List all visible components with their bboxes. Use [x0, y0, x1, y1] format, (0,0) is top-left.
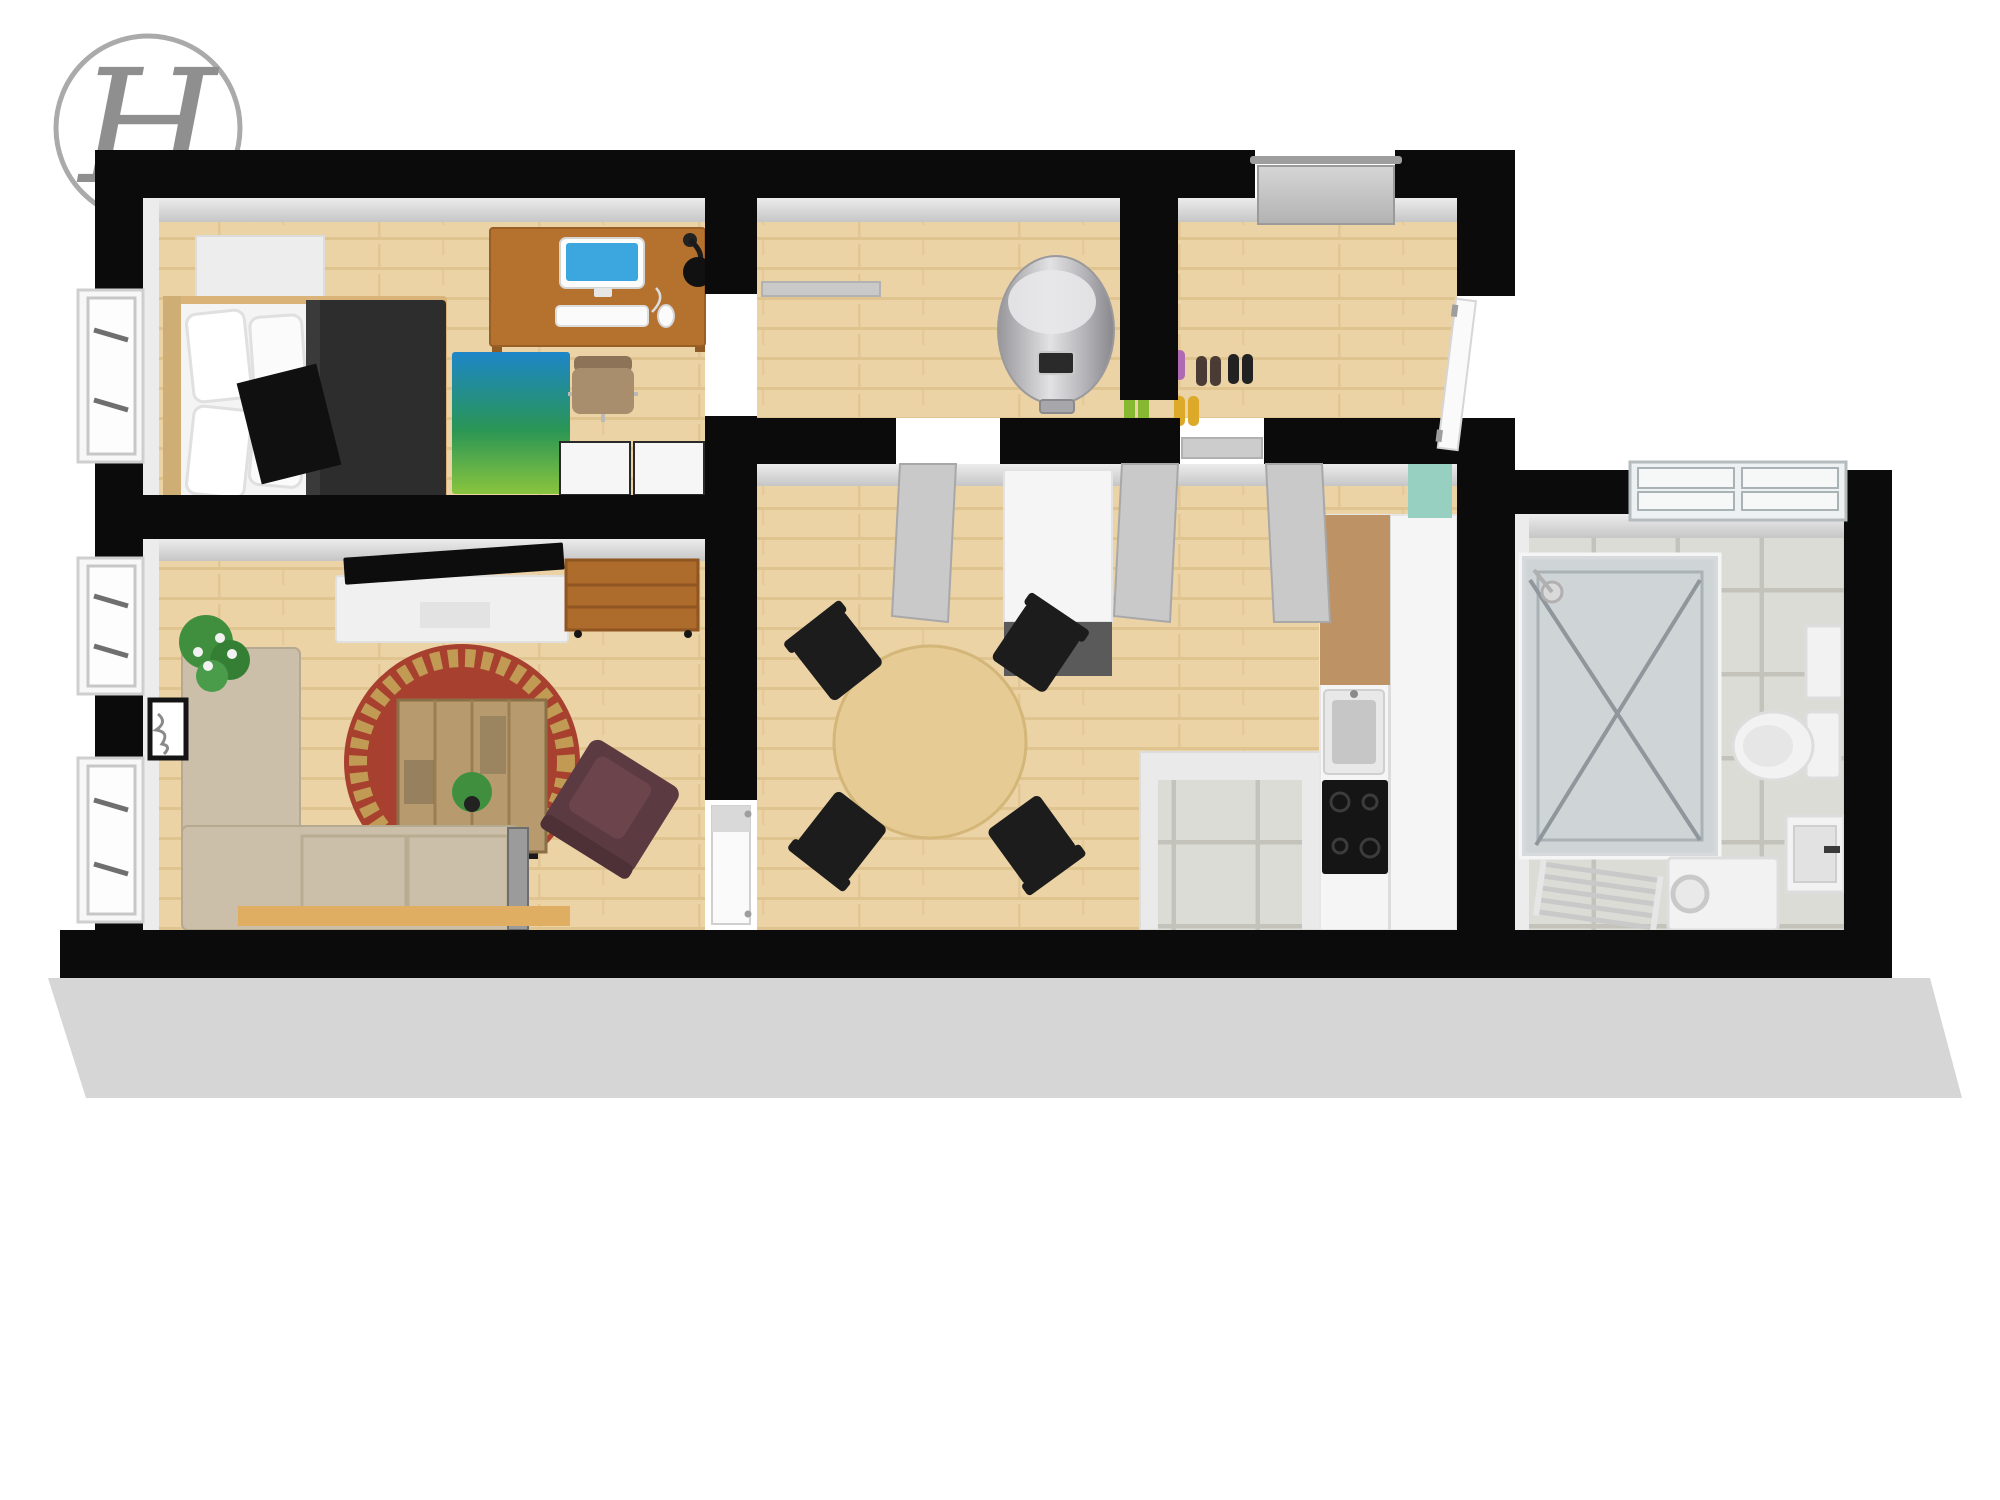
- bed-pillow: [186, 405, 253, 499]
- bedroom-rug: [452, 352, 570, 494]
- wall-center-vertical: [705, 416, 757, 800]
- plant-flower: [193, 647, 203, 657]
- kitchen-door-leaf-open: [1114, 464, 1178, 622]
- entrance-door-leaf: [1258, 166, 1394, 224]
- bathroom-window: [1630, 462, 1846, 520]
- wall-vestibule-stub: [1120, 150, 1178, 400]
- washer-door-icon: [1673, 877, 1707, 911]
- shoe: [1188, 396, 1199, 426]
- living-door: [712, 806, 752, 924]
- mouse: [658, 305, 674, 327]
- hinge-icon: [745, 811, 752, 818]
- wall-bottom: [60, 930, 1892, 978]
- wall-left: [95, 150, 143, 290]
- counter-wood-top: [1320, 515, 1390, 685]
- toilet-seat: [1743, 725, 1793, 767]
- wall-cabinet: [1806, 626, 1842, 698]
- bedroom-inner-wall: [143, 198, 705, 222]
- shoe: [1210, 356, 1221, 386]
- computer-screen: [566, 243, 638, 281]
- window-living-2: [78, 758, 143, 922]
- door-threshold: [1182, 438, 1262, 458]
- heater-pedal: [1040, 400, 1074, 413]
- bed-headboard: [163, 296, 181, 510]
- entrance-door: [1250, 156, 1402, 224]
- plant-flower: [227, 649, 237, 659]
- mint-glass-panel: [1408, 462, 1452, 518]
- bed-duvet: [306, 300, 446, 506]
- wall-hall-kitchen: [757, 418, 896, 464]
- wall-left: [95, 694, 143, 758]
- window-bedroom: [78, 290, 143, 462]
- window-pane: [1742, 492, 1838, 510]
- door-rail: [1250, 156, 1402, 164]
- hinge-icon: [745, 911, 752, 918]
- sofa-board: [238, 906, 570, 926]
- washbasin: [1786, 816, 1844, 892]
- faucet-icon: [1824, 846, 1840, 853]
- window-frame: [88, 766, 135, 914]
- sideboard-leg: [684, 630, 692, 638]
- floorplan-canvas: H: [0, 0, 2000, 1500]
- shoe: [1242, 354, 1253, 384]
- sideboard: [566, 560, 698, 638]
- sink-basin: [1332, 700, 1376, 764]
- living-door-shade: [712, 806, 750, 832]
- wall-hall-kitchen: [1264, 418, 1457, 464]
- faucet-icon: [1350, 690, 1358, 698]
- room-hallway: [757, 198, 1457, 426]
- window-frame: [88, 298, 135, 454]
- double-bed: [163, 296, 447, 510]
- office-chair: [568, 356, 638, 422]
- room-living: [143, 539, 705, 930]
- kitchen-counter: [1320, 515, 1457, 930]
- monitor-stand: [594, 288, 612, 297]
- table-plant-pot: [464, 796, 480, 812]
- cooktop-panel: [1322, 780, 1388, 874]
- tv-stand-notch: [420, 602, 490, 628]
- kitchen-door-leaf-open: [892, 464, 956, 622]
- heater-top: [1008, 270, 1096, 334]
- floor-slab-plinth: [48, 978, 1962, 1098]
- wall-bathroom-top: [1515, 470, 1638, 514]
- window-pane: [1638, 468, 1734, 488]
- chair-seat: [572, 368, 634, 414]
- nook-floor: [1158, 780, 1302, 930]
- bedroom-inner-wall: [143, 198, 159, 495]
- plant-flower: [215, 633, 225, 643]
- wall-vestibule-right: [1457, 150, 1515, 296]
- floorplan-page: H: [0, 0, 2000, 1500]
- sideboard-leg: [574, 630, 582, 638]
- table-grain: [480, 716, 506, 774]
- washing-machine: [1668, 858, 1778, 930]
- room-bathroom: [1515, 514, 1844, 932]
- wall-right: [1844, 470, 1892, 978]
- room-bedroom: [143, 198, 713, 510]
- basin: [1794, 826, 1836, 882]
- heater-label: [1038, 352, 1074, 374]
- toilet: [1733, 712, 1840, 780]
- wall-kitchen-bathroom: [1457, 418, 1515, 978]
- window-pane: [1638, 492, 1734, 510]
- dresser: [634, 442, 704, 495]
- keyboard: [556, 306, 648, 326]
- wall-left: [95, 462, 143, 558]
- bedroom-door-leaf-open: [762, 282, 880, 296]
- wall-top: [1395, 150, 1457, 198]
- table-grain: [404, 760, 434, 804]
- window-pane: [1742, 468, 1838, 488]
- wall-center-vertical: [705, 198, 757, 294]
- shower-cabin: [1522, 556, 1718, 856]
- wall-bedroom-living: [143, 495, 705, 539]
- dresser: [560, 442, 630, 495]
- cabinet-top: [1004, 470, 1112, 622]
- cooktop: [1322, 780, 1388, 874]
- kitchen-door-leaf-open: [1266, 464, 1330, 622]
- shoe: [1196, 356, 1207, 386]
- window-frame: [88, 566, 135, 686]
- sideboard-top: [566, 560, 698, 630]
- wall-art: [150, 700, 186, 758]
- plant-flower: [203, 661, 213, 671]
- window-living-1: [78, 558, 143, 694]
- storage-nook: [1140, 752, 1320, 930]
- tv-unit: [336, 542, 568, 642]
- room-kitchen-dining: [757, 462, 1457, 930]
- shoe: [1228, 354, 1239, 384]
- wall-hall-kitchen: [1000, 418, 1180, 464]
- wall-top: [95, 150, 1255, 198]
